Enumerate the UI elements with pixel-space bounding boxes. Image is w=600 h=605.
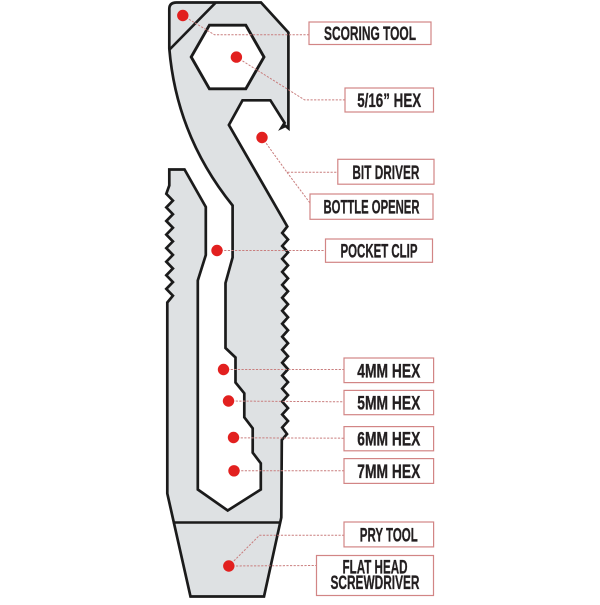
svg-text:5MM HEX: 5MM HEX [357, 394, 420, 415]
svg-text:5/16” HEX: 5/16” HEX [357, 91, 421, 112]
svg-text:7MM HEX: 7MM HEX [357, 462, 420, 483]
svg-text:6MM HEX: 6MM HEX [357, 430, 420, 451]
svg-text:POCKET CLIP: POCKET CLIP [341, 242, 418, 263]
svg-text:SCORING TOOL: SCORING TOOL [324, 24, 416, 45]
svg-text:4MM HEX: 4MM HEX [357, 361, 420, 382]
svg-text:PRY TOOL: PRY TOOL [360, 526, 418, 547]
svg-text:SCREWDRIVER: SCREWDRIVER [331, 573, 420, 594]
svg-text:BOTTLE OPENER: BOTTLE OPENER [324, 198, 420, 219]
svg-text:BIT DRIVER: BIT DRIVER [352, 163, 419, 184]
